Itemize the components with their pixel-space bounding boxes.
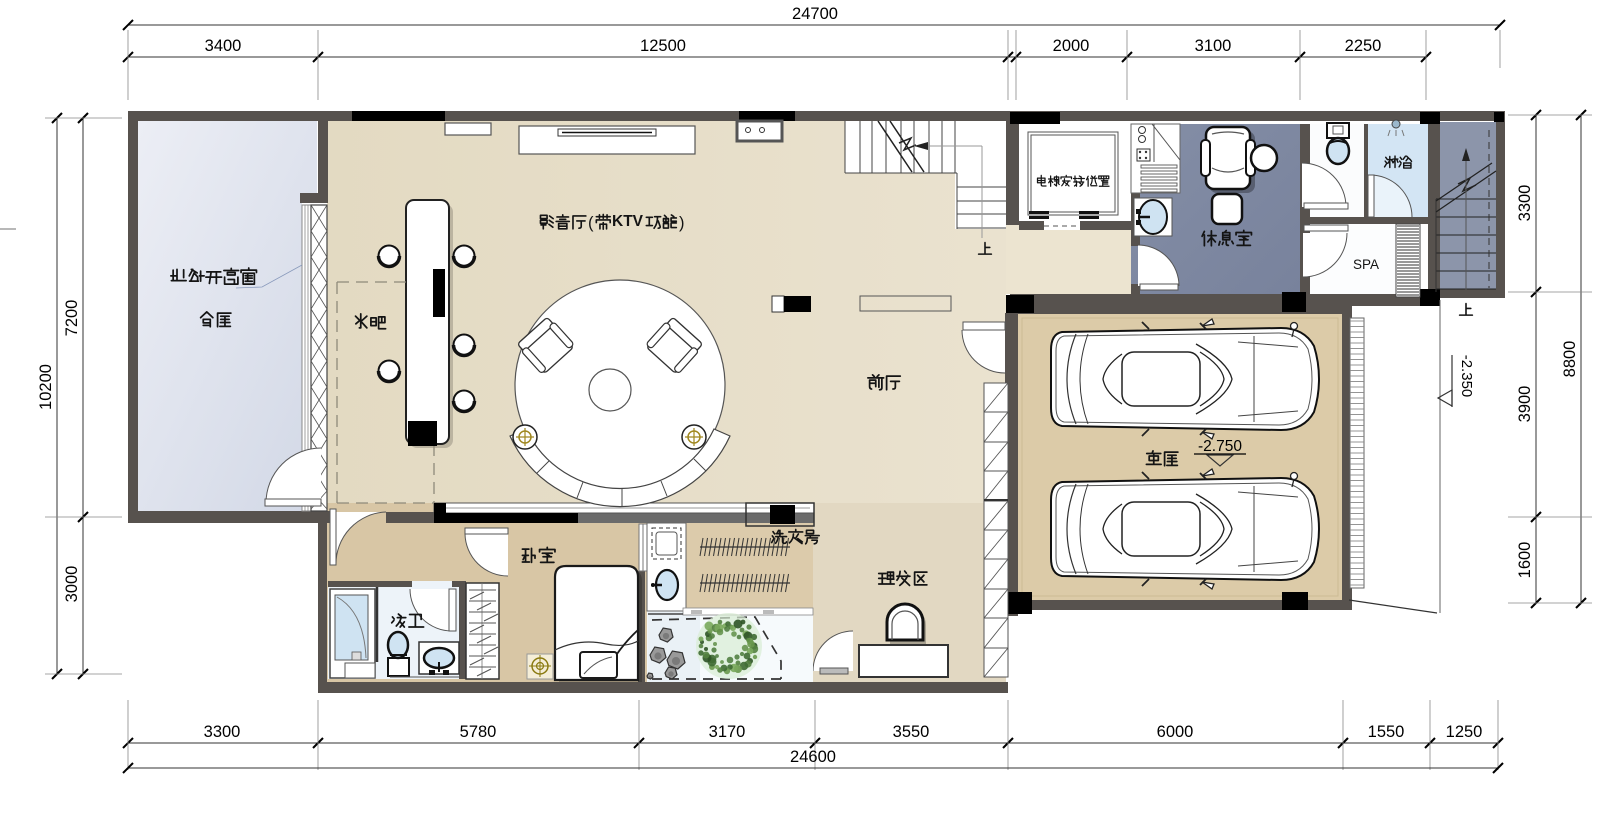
svg-text:3550: 3550 [893, 723, 930, 741]
svg-text:): ) [679, 214, 685, 232]
svg-text:3300: 3300 [204, 723, 241, 741]
svg-text:12500: 12500 [640, 37, 686, 55]
svg-text:-2.750: -2.750 [1198, 438, 1242, 455]
svg-text:7200: 7200 [63, 300, 81, 337]
svg-text:5780: 5780 [460, 723, 497, 741]
svg-text:2250: 2250 [1345, 37, 1382, 55]
svg-text:3400: 3400 [205, 37, 242, 55]
svg-text:2000: 2000 [1053, 37, 1090, 55]
svg-text:10200: 10200 [37, 364, 55, 410]
svg-text:3300: 3300 [1516, 185, 1534, 222]
svg-text:24700: 24700 [792, 5, 838, 23]
svg-text:1600: 1600 [1516, 542, 1534, 579]
svg-text:-2.350: -2.350 [1458, 355, 1475, 398]
svg-text:3900: 3900 [1516, 386, 1534, 423]
svg-text:KTV: KTV [612, 213, 644, 230]
svg-text:24600: 24600 [790, 748, 836, 766]
svg-text:6000: 6000 [1157, 723, 1194, 741]
svg-text:3170: 3170 [709, 723, 746, 741]
svg-text:(: ( [588, 214, 594, 232]
svg-text:1250: 1250 [1446, 723, 1483, 741]
svg-text:3100: 3100 [1195, 37, 1232, 55]
svg-text:8800: 8800 [1561, 341, 1579, 378]
svg-text:SPA: SPA [1353, 257, 1379, 272]
svg-text:1550: 1550 [1368, 723, 1405, 741]
svg-text:3000: 3000 [63, 566, 81, 603]
